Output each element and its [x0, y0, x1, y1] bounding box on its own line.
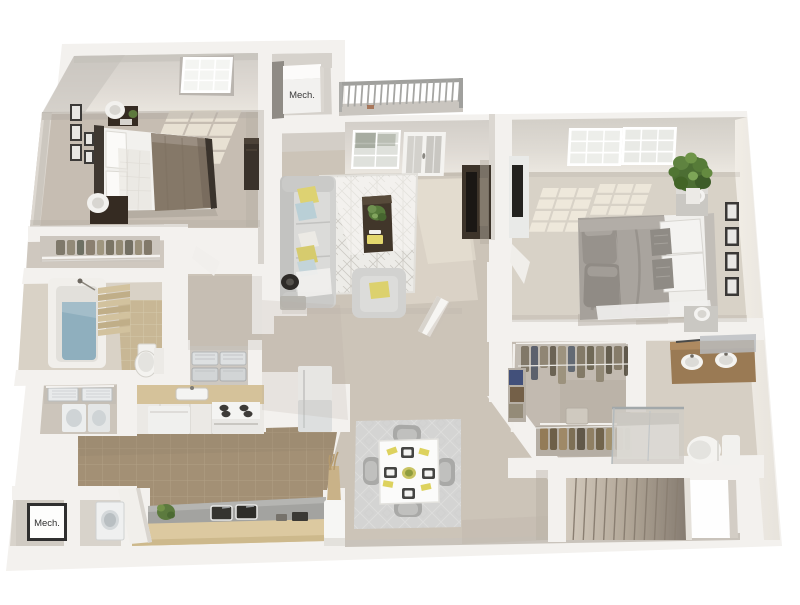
svg-text:Mech.: Mech.: [34, 518, 60, 529]
svg-text:Mech.: Mech.: [289, 90, 315, 101]
